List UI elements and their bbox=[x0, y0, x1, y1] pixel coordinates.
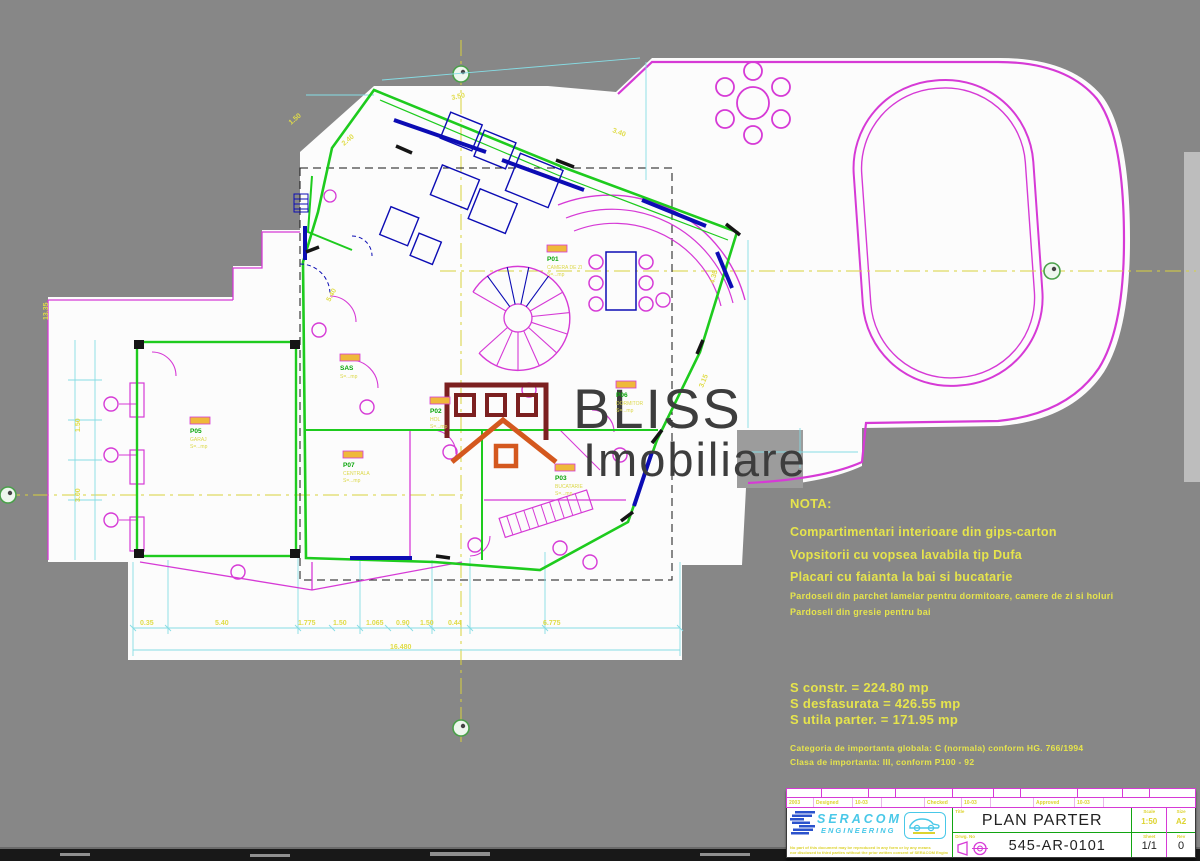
company-stamp-box bbox=[904, 812, 946, 839]
area-unfolded: S desfasurata = 426.55 mp bbox=[790, 697, 960, 710]
svg-text:S=...mp: S=...mp bbox=[190, 444, 208, 450]
size-value: A2 bbox=[1167, 817, 1195, 826]
area-usable: S utila parter. = 171.95 mp bbox=[790, 713, 958, 726]
importance-class: Clasa de importanta: III, conform P100 -… bbox=[790, 758, 974, 767]
svg-text:DORMITOR: DORMITOR bbox=[616, 401, 644, 407]
floor-plan-scan: BLISS Imobiliare 3.50 3.40 2.40 1.50 4.3… bbox=[0, 0, 1200, 861]
svg-text:1.775: 1.775 bbox=[298, 620, 316, 627]
svg-text:S=...mp: S=...mp bbox=[430, 424, 448, 430]
approved-value: 10-03 bbox=[1075, 798, 1104, 807]
svg-text:S=...mp: S=...mp bbox=[547, 272, 565, 278]
svg-text:0.35: 0.35 bbox=[140, 620, 154, 627]
svg-text:S=...mp: S=...mp bbox=[340, 374, 358, 380]
watermark-brand2: Imobiliare bbox=[583, 433, 807, 486]
svg-text:0.44: 0.44 bbox=[448, 620, 462, 627]
car-icon bbox=[906, 813, 942, 836]
svg-text:1.50: 1.50 bbox=[333, 620, 347, 627]
company-name: SERACOM bbox=[817, 812, 902, 826]
size-label: Size bbox=[1167, 809, 1195, 814]
designed-label: Designed bbox=[814, 798, 853, 807]
svg-text:1.50: 1.50 bbox=[75, 418, 82, 432]
year-cell: 2003 bbox=[787, 798, 814, 807]
svg-text:13.35: 13.35 bbox=[43, 302, 50, 320]
svg-text:S=...mp: S=...mp bbox=[616, 408, 634, 414]
importance-category: Categoria de importanta globala: C (norm… bbox=[790, 744, 1083, 753]
note-line: Vopsitorii cu vopsea lavabila tip Dufa bbox=[790, 549, 1022, 562]
svg-text:P01: P01 bbox=[547, 256, 559, 263]
scale-value: 1:50 bbox=[1132, 817, 1166, 826]
svg-text:0.90: 0.90 bbox=[396, 620, 410, 627]
svg-text:P06: P06 bbox=[616, 392, 628, 399]
approvals-row: 2003 Designed 10-03 Checked 10-03 Approv… bbox=[786, 797, 1196, 808]
svg-text:BUCATARIE: BUCATARIE bbox=[555, 484, 584, 490]
svg-text:P07: P07 bbox=[343, 462, 355, 469]
revision-row bbox=[786, 788, 1196, 797]
drawing-title-cell: Title PLAN PARTER bbox=[953, 808, 1131, 833]
svg-text:1.50: 1.50 bbox=[420, 620, 434, 627]
svg-text:P05: P05 bbox=[190, 428, 202, 435]
svg-text:1.065: 1.065 bbox=[366, 620, 384, 627]
drawing-title: PLAN PARTER bbox=[953, 812, 1131, 830]
disclaimer-line: nor disclosed to third parties without t… bbox=[790, 850, 948, 855]
svg-text:P03: P03 bbox=[555, 475, 567, 482]
company-subtitle: ENGINEERING bbox=[821, 826, 896, 835]
svg-text:P02: P02 bbox=[430, 408, 442, 415]
drawing-number-label: Drwg. No bbox=[955, 834, 975, 839]
drawing-number: 545-AR-0101 bbox=[983, 838, 1131, 854]
sheet-value: 1/1 bbox=[1132, 840, 1166, 852]
drawing-number-cell: Drwg. No 545-AR-0101 bbox=[953, 833, 1131, 857]
area-built: S constr. = 224.80 mp bbox=[790, 681, 929, 694]
scan-edge-strip bbox=[1184, 152, 1200, 482]
approved-label: Approved bbox=[1034, 798, 1075, 807]
designed-value: 10-03 bbox=[853, 798, 882, 807]
svg-text:SAS: SAS bbox=[340, 365, 354, 372]
rev-value: 0 bbox=[1167, 840, 1195, 852]
company-cell: SERACOM ENGINEERING No part of this docu… bbox=[787, 808, 953, 857]
checked-label: Checked bbox=[925, 798, 962, 807]
size-cell: Size A2 bbox=[1167, 808, 1195, 833]
seracom-logo-icon bbox=[789, 811, 817, 837]
rev-cell: Rev 0 bbox=[1167, 833, 1195, 857]
scale-cell: Scale 1:50 bbox=[1132, 808, 1166, 833]
checked-value: 10-03 bbox=[962, 798, 991, 807]
svg-text:16.480: 16.480 bbox=[390, 644, 412, 651]
cad-drawing: BLISS Imobiliare 3.50 3.40 2.40 1.50 4.3… bbox=[0, 0, 1200, 861]
svg-text:GARAJ: GARAJ bbox=[190, 437, 207, 443]
note-line: Compartimentari interioare din gips-cart… bbox=[790, 526, 1057, 539]
watermark-brand: BLISS bbox=[573, 377, 742, 440]
svg-text:HOL: HOL bbox=[430, 417, 441, 423]
svg-text:S=...mp: S=...mp bbox=[555, 491, 573, 497]
note-line: Pardoseli din parchet lamelar pentru dor… bbox=[790, 592, 1113, 601]
svg-text:6.775: 6.775 bbox=[543, 620, 561, 627]
notes-heading: NOTA: bbox=[790, 497, 832, 510]
svg-text:S=...mp: S=...mp bbox=[343, 478, 361, 484]
svg-text:CAMERA DE ZI: CAMERA DE ZI bbox=[547, 265, 582, 271]
note-line: Pardoseli din gresie pentru bai bbox=[790, 608, 931, 617]
svg-text:3.00: 3.00 bbox=[75, 488, 82, 502]
scale-label: Scale bbox=[1132, 809, 1166, 814]
sheet-cell: Sheet 1/1 bbox=[1132, 833, 1166, 857]
sheet-label: Sheet bbox=[1132, 834, 1166, 839]
svg-text:5.40: 5.40 bbox=[215, 620, 229, 627]
svg-text:CENTRALA: CENTRALA bbox=[343, 471, 370, 477]
rev-label: Rev bbox=[1167, 834, 1195, 839]
title-block: 2003 Designed 10-03 Checked 10-03 Approv… bbox=[786, 788, 1196, 858]
note-line: Placari cu faianta la bai si bucatarie bbox=[790, 571, 1013, 584]
